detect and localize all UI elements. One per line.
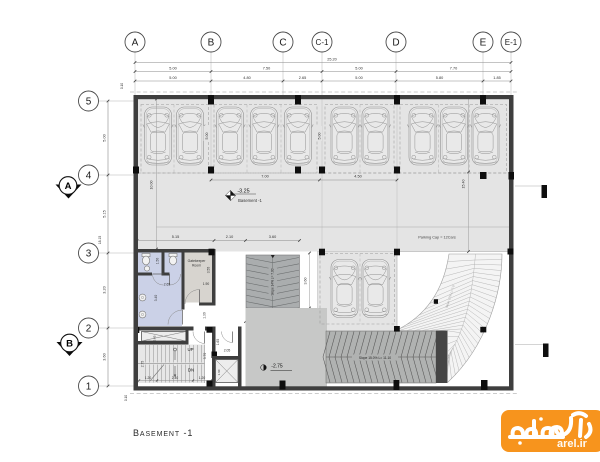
svg-text:2: 2: [86, 324, 92, 335]
svg-text:Basement -1: Basement -1: [238, 198, 262, 203]
svg-text:5.80: 5.80: [436, 76, 443, 80]
svg-text:3.20: 3.20: [103, 286, 107, 293]
svg-text:B: B: [66, 339, 73, 350]
svg-text:0.95: 0.95: [153, 335, 157, 341]
svg-text:Slope 15.0% L= 11.10: Slope 15.0% L= 11.10: [359, 356, 391, 360]
svg-text:5: 5: [86, 97, 92, 108]
svg-text:4: 4: [86, 171, 92, 182]
svg-text:1.90: 1.90: [203, 282, 210, 286]
svg-text:1.50: 1.50: [156, 258, 160, 265]
svg-text:2.05: 2.05: [224, 349, 231, 353]
svg-text:UP: UP: [187, 347, 193, 352]
svg-text:2.65: 2.65: [299, 76, 306, 80]
svg-text:5.00: 5.00: [205, 133, 209, 140]
svg-text:3.60: 3.60: [269, 235, 276, 239]
svg-text:3.40: 3.40: [154, 295, 158, 302]
svg-text:7.70: 7.70: [450, 67, 457, 71]
svg-text:3.70: 3.70: [203, 353, 207, 360]
svg-text:25.20: 25.20: [327, 58, 337, 62]
svg-text:Slope 14% L= 7.00: Slope 14% L= 7.00: [271, 268, 275, 295]
svg-text:D: D: [392, 38, 399, 49]
svg-text:Parking Cap = 12Cars: Parking Cap = 12Cars: [418, 236, 456, 240]
svg-text:5.00: 5.00: [355, 67, 362, 71]
svg-text:1.30: 1.30: [203, 312, 207, 319]
svg-text:5.00: 5.00: [355, 76, 362, 80]
svg-text:2.75: 2.75: [141, 361, 145, 368]
svg-text:Room: Room: [192, 264, 201, 268]
svg-text:5.15: 5.15: [172, 235, 179, 239]
svg-text:B: B: [208, 38, 215, 49]
svg-text:15.40: 15.40: [462, 180, 466, 189]
svg-text:18.15: 18.15: [98, 236, 102, 245]
svg-text:4.50: 4.50: [354, 175, 361, 179]
svg-text:2.10: 2.10: [226, 235, 233, 239]
svg-text:5.00: 5.00: [103, 134, 107, 141]
svg-text:5.00: 5.00: [318, 133, 322, 140]
svg-text:0.10: 0.10: [124, 395, 128, 401]
svg-text:Gatekeeper: Gatekeeper: [188, 259, 207, 263]
svg-text:1.20: 1.20: [199, 376, 206, 380]
svg-text:-3.25: -3.25: [237, 189, 249, 195]
svg-text:3.60: 3.60: [103, 353, 107, 360]
svg-text:E: E: [480, 38, 487, 49]
svg-text:0.10: 0.10: [120, 83, 124, 89]
svg-text:-2.75: -2.75: [271, 364, 283, 370]
svg-text:A: A: [65, 181, 72, 192]
svg-text:10.00: 10.00: [150, 181, 154, 190]
svg-text:1.85: 1.85: [493, 76, 500, 80]
svg-text:A: A: [132, 38, 139, 49]
svg-text:1: 1: [86, 382, 92, 393]
svg-text:1.60: 1.60: [217, 369, 221, 375]
svg-text:3.60: 3.60: [304, 278, 308, 285]
svg-text:arel.ir: arel.ir: [557, 438, 588, 450]
svg-text:5.00: 5.00: [169, 76, 176, 80]
svg-text:C: C: [279, 38, 286, 49]
svg-text:C-1: C-1: [316, 38, 329, 47]
svg-text:1.20: 1.20: [145, 376, 152, 380]
svg-text:DN: DN: [188, 368, 194, 373]
svg-text:2.65: 2.65: [164, 283, 171, 287]
svg-text:7.50: 7.50: [263, 67, 270, 71]
svg-text:3: 3: [86, 249, 92, 260]
svg-text:5.15: 5.15: [103, 210, 107, 217]
svg-text:7.00: 7.00: [261, 175, 268, 179]
svg-text:2.40: 2.40: [172, 376, 179, 380]
svg-text:3.55: 3.55: [207, 267, 211, 274]
svg-text:4.80: 4.80: [243, 76, 250, 80]
svg-text:1.65: 1.65: [216, 339, 220, 346]
svg-text:5.00: 5.00: [169, 67, 176, 71]
svg-text:E-1: E-1: [505, 38, 518, 47]
